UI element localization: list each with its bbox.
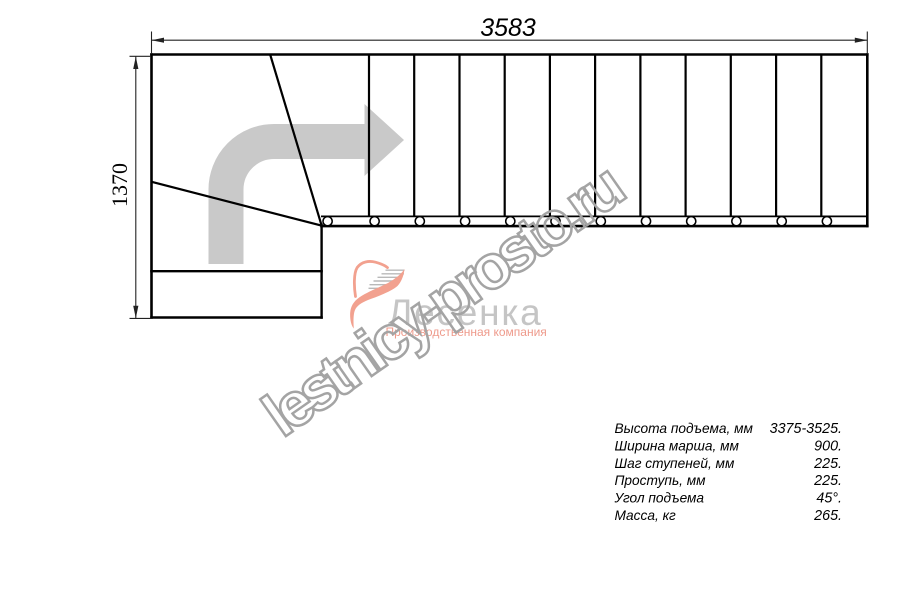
svg-text:45°.: 45°. bbox=[816, 491, 842, 507]
svg-text:265.: 265. bbox=[813, 508, 842, 524]
svg-text:Угол подъема: Угол подъема bbox=[614, 491, 705, 506]
svg-text:Ширина марша, мм: Ширина марша, мм bbox=[615, 438, 740, 453]
svg-text:900.: 900. bbox=[814, 438, 842, 454]
svg-text:225.: 225. bbox=[813, 456, 842, 472]
svg-text:1370: 1370 bbox=[107, 163, 132, 207]
svg-text:Проступь, мм: Проступь, мм bbox=[615, 473, 707, 488]
svg-text:Масса, кг: Масса, кг bbox=[615, 508, 677, 523]
svg-text:Высота подъема, мм: Высота подъема, мм bbox=[615, 421, 754, 436]
svg-text:3375-3525.: 3375-3525. bbox=[770, 421, 842, 437]
svg-text:3583: 3583 bbox=[480, 14, 536, 42]
svg-text:lestnicy-prosto.ru: lestnicy-prosto.ru bbox=[251, 150, 638, 450]
svg-text:Шаг ступеней, мм: Шаг ступеней, мм bbox=[615, 456, 735, 471]
svg-text:225.: 225. bbox=[813, 473, 842, 489]
